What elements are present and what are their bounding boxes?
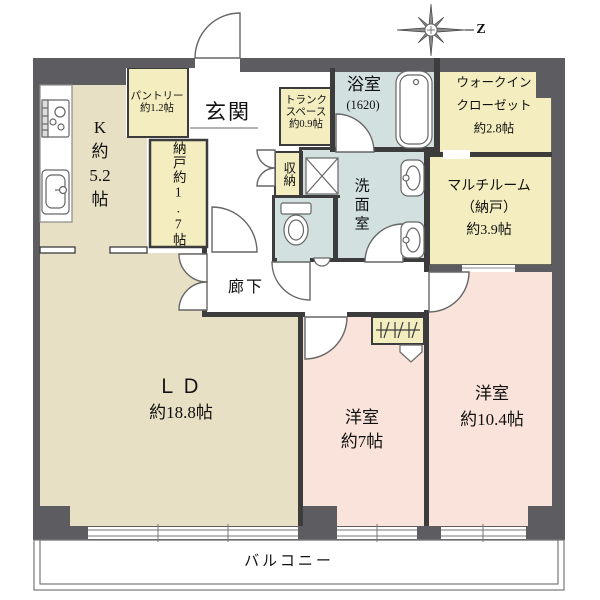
entrance-door [195,13,240,58]
washroom-label: 洗面室 [351,178,368,235]
stove-icon [42,100,69,137]
compass-north-label: Z [476,22,485,38]
walk-in-closet-label: ウォークイン クローゼット 約2.8帖 [456,72,531,141]
compass-icon [397,4,474,56]
toilet-door [272,262,310,300]
hall-door [212,207,257,252]
kitchen-sink-icon [42,170,69,214]
multiroom-label: マルチルーム （納戸） 約3.9帖 [447,176,531,242]
vanity-sink-icon-1 [401,160,424,196]
floorplan: K 約 5.2 帖 パントリー 約1.2帖 玄関 トランク スペース 約0.9帖… [0,0,600,600]
entrance-label: 玄関 [205,100,251,124]
kitchen-opening [75,247,110,255]
bathroom-label: 浴室 [347,75,381,95]
pantry-label: パントリー 約1.2帖 [130,91,183,115]
corridor-label: 廊下 [228,279,264,297]
living-dining-label: ＬＤ 約18.8帖 [149,375,213,425]
bathtub-icon [396,71,432,148]
trunk-label: トランク スペース 約0.9帖 [285,95,327,131]
bedroom7-label: 洋室 約7帖 [341,406,384,454]
balcony-label: バルコニー [244,553,334,570]
vanity-sink-icon-2 [401,222,424,258]
living-floor-2 [202,317,298,526]
closet-label: 収納 [281,162,295,187]
hall-swing-door-lower [257,168,275,186]
washing-machine-pan-icon [306,158,338,194]
kitchen-label: K 約 5.2 帖 [89,116,110,212]
bedroom104-label: 洋室 約10.4帖 [460,381,524,433]
bathroom-size-label: (1620) [346,98,379,112]
toilet-basin-icon [314,258,330,266]
storeroom-label: 納戸約1.7帖 [170,141,186,247]
hall-swing-door-upper [257,150,275,168]
